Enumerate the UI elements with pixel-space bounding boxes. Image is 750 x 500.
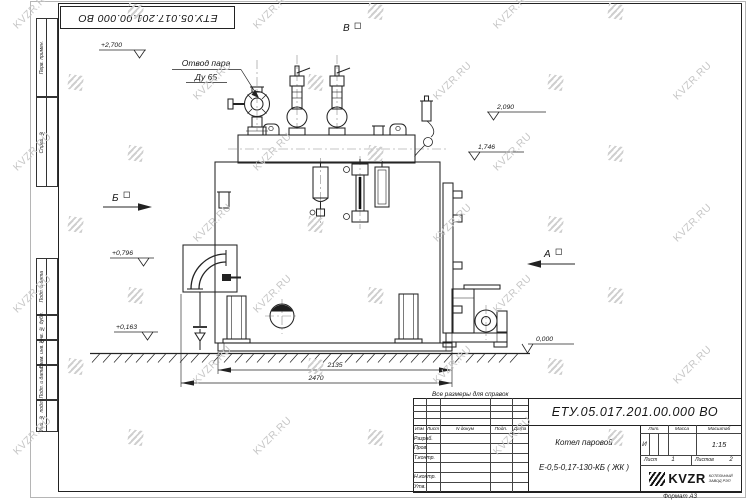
tb-col-podp: Подп. (490, 426, 512, 433)
tb-line (413, 411, 528, 412)
tb-lit-value: И (640, 435, 649, 453)
tb-designation: ЕТУ.05.017.201.00.000 ВО (530, 399, 740, 424)
title-block: ЕТУ.05.017.201.00.000 ВО Изм Лист N доку… (0, 0, 750, 500)
tb-massa-label: Масса (668, 426, 696, 433)
tb-row-utv: Утв. (414, 483, 439, 491)
tb-sheets-label: Листов (695, 456, 721, 465)
tb-line (413, 405, 528, 406)
kvzr-logo-text: KVZR (668, 471, 705, 486)
tb-line (640, 433, 742, 434)
kvzr-logo-icon (649, 472, 665, 486)
tb-row-razrab: Разраб. (414, 435, 439, 443)
tb-sheet-label: Лист (644, 456, 664, 465)
tb-line (649, 433, 650, 455)
tb-scale-value: 1:15 (696, 435, 742, 453)
tb-col-ndokum: N докум (440, 426, 490, 433)
tb-sheet-value: 1 (668, 456, 678, 465)
tb-logo: KVZR КОТЕЛЬНЫЙ ЗАВОД РЭП (641, 466, 741, 491)
tb-col-list: Лист (426, 426, 440, 433)
tb-massa-value (668, 435, 696, 453)
drawing-sheet: { "watermark": { "text": "KVZR.RU" }, "f… (0, 0, 750, 500)
tb-line (413, 418, 528, 419)
tb-line (512, 398, 513, 492)
tb-col-izm: Изм (413, 426, 426, 433)
tb-line (691, 455, 692, 465)
tb-row-tkontr: Т.контр. (414, 454, 439, 462)
tb-format: Формат А3 (620, 493, 740, 500)
tb-row-nkontr: Н.контр. (414, 473, 439, 481)
tb-lit-label: Лит. (640, 426, 668, 433)
kvzr-logo-sub2: ЗАВОД РЭП (709, 479, 733, 484)
tb-row-prov: Пров. (414, 444, 439, 452)
tb-line (490, 398, 491, 492)
tb-scale-label: Масштаб (696, 426, 742, 433)
tb-line (658, 433, 659, 455)
tb-product-line2: Е-0,5-0,17-130-КБ ( ЖК ) (529, 452, 639, 482)
tb-sheets-value: 2 (726, 456, 736, 465)
tb-col-data: Дата (512, 426, 528, 433)
tb-row-blank (414, 464, 439, 472)
tb-line (440, 398, 441, 492)
